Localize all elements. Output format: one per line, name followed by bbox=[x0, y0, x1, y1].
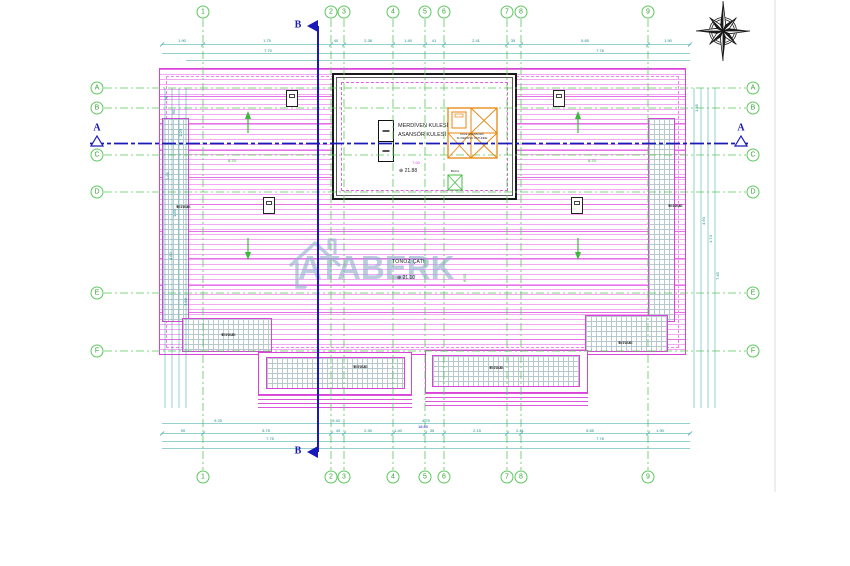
roof-vent-box bbox=[553, 90, 565, 107]
grid-bubble-top: 1 bbox=[197, 6, 210, 19]
cad-roof-plan-canvas: ATABERK MERDİVEN KULESİ ASANSÖR KULESİ ⊕… bbox=[0, 0, 850, 566]
compass-point-dark bbox=[723, 31, 736, 44]
grid-bubble-top: 7 bbox=[501, 6, 514, 19]
elevator-shaft-label: KULE ASANSÖRÜ SU DEPOSU ÜSTÜNDE bbox=[449, 133, 495, 140]
grid-bubble-right: A bbox=[747, 82, 760, 95]
dimension-label: 9.40 bbox=[332, 419, 340, 423]
section-arrow-b-bottom bbox=[307, 446, 318, 458]
grid-bubble-bottom: 1 bbox=[197, 471, 210, 484]
dimension-tick bbox=[201, 43, 205, 47]
dimension-label: 41 bbox=[432, 39, 436, 43]
compass-point-light bbox=[696, 28, 723, 31]
grid-bubble-right: E bbox=[747, 287, 760, 300]
vent-shaft-label: BACA bbox=[451, 169, 459, 173]
dimension-tick bbox=[519, 43, 523, 47]
dimension-tick bbox=[688, 43, 692, 47]
grid-bubble-left: A bbox=[91, 82, 104, 95]
compass-circle bbox=[710, 18, 737, 45]
dimension-label: 9.25 bbox=[214, 419, 222, 423]
grid-bubble-right: C bbox=[747, 149, 760, 162]
dimension-tick bbox=[160, 432, 164, 436]
dimension-label: 4.60 bbox=[702, 217, 706, 225]
dimension-label: 35 bbox=[430, 429, 434, 433]
dimension-label: 2.30 bbox=[364, 429, 372, 433]
dimension-label: 7.75 bbox=[266, 437, 274, 441]
compass-point-dark bbox=[720, 1, 723, 31]
dimension-tick bbox=[329, 43, 333, 47]
grid-bubble-left: C bbox=[91, 149, 104, 162]
dimension-label: 1.40 bbox=[404, 39, 412, 43]
dimension-label: 2.38 bbox=[364, 39, 372, 43]
section-arrow-a-left bbox=[91, 136, 103, 146]
grid-bubble-top: 6 bbox=[438, 6, 451, 19]
section-arrow-a-right bbox=[735, 136, 747, 146]
terrace-strip-left bbox=[162, 118, 189, 322]
section-label-b-bottom: B bbox=[295, 446, 302, 457]
terrace-block-bottom-left bbox=[182, 318, 272, 352]
dimension-label: 5.75 bbox=[262, 429, 270, 433]
dimension-label: 7.70 bbox=[264, 49, 272, 53]
compass-point-light bbox=[720, 31, 723, 61]
grid-bubble-left: F bbox=[91, 345, 104, 358]
grid-bubble-top: 9 bbox=[642, 6, 655, 19]
grid-bubble-bottom: 4 bbox=[387, 471, 400, 484]
dimension-tick bbox=[442, 43, 446, 47]
dimension-label: 1.90 bbox=[178, 39, 186, 43]
dimension-tick bbox=[505, 43, 509, 47]
compass-point-light bbox=[723, 31, 736, 44]
dimension-label: 1.35 bbox=[695, 104, 699, 112]
roof-level: ⊕ 21.10 bbox=[397, 275, 415, 281]
compass-point-dark bbox=[723, 28, 750, 31]
grid-bubble-bottom: 3 bbox=[338, 471, 351, 484]
dimension-label: 90 bbox=[181, 429, 185, 433]
terrace-lower-right-hatch bbox=[432, 355, 580, 387]
dimension-label: 1.90 bbox=[664, 39, 672, 43]
eave-band-left bbox=[258, 395, 412, 408]
grid-bubble-left: E bbox=[91, 287, 104, 300]
dimension-label: 1.75 bbox=[263, 39, 271, 43]
dimension-tick bbox=[391, 432, 395, 436]
compass-center bbox=[721, 29, 724, 32]
dimension-tick bbox=[201, 432, 205, 436]
dimension-label: 7.45 bbox=[716, 272, 720, 280]
tower-title: MERDİVEN KULESİ ASANSÖR KULESİ bbox=[398, 122, 448, 141]
grid-bubble-bottom: 2 bbox=[325, 471, 338, 484]
compass-point-dark bbox=[723, 18, 736, 31]
dimension-label: 2.15 bbox=[473, 429, 481, 433]
stair-core bbox=[378, 120, 394, 162]
compass-point-dark bbox=[710, 18, 723, 31]
dimension-tick bbox=[646, 43, 650, 47]
dimension-tick bbox=[423, 43, 427, 47]
dimension-tick bbox=[391, 43, 395, 47]
grid-bubble-top: 5 bbox=[419, 6, 432, 19]
dimension-tick bbox=[342, 43, 346, 47]
dimension-label: 1.74 bbox=[709, 235, 713, 243]
terrace-lower-left-hatch bbox=[266, 357, 405, 389]
dimension-tick bbox=[442, 432, 446, 436]
grid-bubble-top: 8 bbox=[515, 6, 528, 19]
dimension-tick bbox=[688, 432, 692, 436]
roof-type-label: TONOZ ÇATI bbox=[392, 259, 425, 265]
compass-circle bbox=[712, 20, 735, 43]
compass-point-light bbox=[723, 18, 736, 31]
section-label-a-left: A bbox=[93, 123, 100, 134]
grid-bubble-left: D bbox=[91, 186, 104, 199]
dimension-label: 7.76 bbox=[596, 49, 604, 53]
dimension-label: 7.76 bbox=[596, 437, 604, 441]
dimension-tick bbox=[505, 432, 509, 436]
roof-vent-box bbox=[571, 197, 583, 214]
terrace-block-bottom-right bbox=[585, 315, 668, 352]
compass-point-dark bbox=[696, 31, 723, 34]
section-arrow-b-top bbox=[307, 20, 318, 32]
dimension-tick bbox=[160, 43, 164, 47]
tower-level: ⊕ 21.88 bbox=[399, 168, 417, 174]
grid-bubble-bottom: 6 bbox=[438, 471, 451, 484]
eave-band-right bbox=[425, 393, 588, 406]
compass-point-light bbox=[723, 31, 750, 34]
ataberk-watermark: ATABERK bbox=[289, 238, 439, 296]
dimension-label: 35 bbox=[511, 39, 515, 43]
grid-bubble-right: D bbox=[747, 186, 760, 199]
grid-bubble-right: B bbox=[747, 102, 760, 115]
section-label-b-top: B bbox=[295, 20, 302, 31]
dimension-label: 1.90 bbox=[656, 429, 664, 433]
compass-point-dark bbox=[723, 31, 726, 61]
roof-vent-box bbox=[263, 197, 275, 214]
grid-bubble-right: F bbox=[747, 345, 760, 358]
compass-point-light bbox=[723, 1, 726, 31]
dimension-label: 4.75 bbox=[422, 419, 430, 423]
dimension-label: 5.65 bbox=[586, 429, 594, 433]
section-label-a-right: A bbox=[737, 123, 744, 134]
grid-bubble-bottom: 8 bbox=[515, 471, 528, 484]
compass-point-light bbox=[710, 18, 723, 31]
dimension-tick bbox=[519, 432, 523, 436]
grid-bubble-bottom: 5 bbox=[419, 471, 432, 484]
dimension-label: 1.40 bbox=[394, 429, 402, 433]
dimension-label: 2.41 bbox=[516, 429, 524, 433]
grid-bubble-bottom: 9 bbox=[642, 471, 655, 484]
stair-core-cell bbox=[379, 121, 393, 142]
dimension-label: 40 bbox=[334, 39, 338, 43]
watermark-text: ATABERK bbox=[298, 249, 454, 287]
compass-point-light bbox=[710, 31, 723, 44]
grid-bubble-left: B bbox=[91, 102, 104, 115]
dimension-tick bbox=[423, 432, 427, 436]
dimension-tick bbox=[342, 432, 346, 436]
dimension-label: 40 bbox=[336, 429, 340, 433]
grid-bubble-top: 4 bbox=[387, 6, 400, 19]
dimension-tick bbox=[329, 432, 333, 436]
compass-point-dark bbox=[710, 31, 723, 44]
grid-bubble-top: 2 bbox=[325, 6, 338, 19]
stair-core-cell bbox=[379, 142, 393, 162]
roof-vent-box bbox=[286, 90, 298, 107]
terrace-strip-right bbox=[648, 118, 675, 322]
dimension-label: 5.65 bbox=[581, 39, 589, 43]
dimension-tick bbox=[646, 432, 650, 436]
dimension-label: 18.60 bbox=[418, 425, 428, 429]
grid-bubble-bottom: 7 bbox=[501, 471, 514, 484]
grid-bubble-top: 3 bbox=[338, 6, 351, 19]
dimension-label: 2.41 bbox=[472, 39, 480, 43]
